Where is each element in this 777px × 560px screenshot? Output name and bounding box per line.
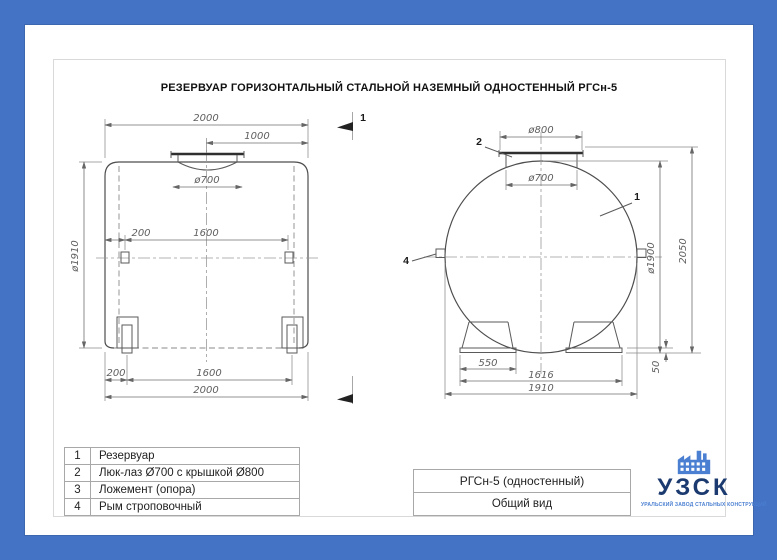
dim-eye-offset: 200 <box>131 228 150 239</box>
manhole-side <box>171 151 244 170</box>
end-view: ø800 ø700 550 1616 1910 ø1900 2050 50 2 … <box>403 125 701 399</box>
lifting-eye-end-right <box>637 249 646 258</box>
section-arrow-bottom <box>337 394 353 403</box>
factory-icon <box>675 448 713 475</box>
title-block: РГСн-5 (одностенный) Общий вид <box>413 469 631 516</box>
section-label: 1 <box>360 112 366 124</box>
section-arrow-top <box>337 122 353 131</box>
dim-base-height: 50 <box>651 361 662 374</box>
view-name: Общий вид <box>414 493 630 515</box>
table-row: 4 Рым строповочный <box>65 499 300 516</box>
part-name: Ложемент (опора) <box>91 482 300 499</box>
dim-length-top: 2000 <box>193 113 218 124</box>
part-name: Люк-лаз Ø700 с крышкой Ø800 <box>91 465 300 482</box>
logo-subtitle: УРАЛЬСКИЙ ЗАВОД СТАЛЬНЫХ КОНСТРУКЦИЙ <box>641 502 747 508</box>
dim-saddle-width: 550 <box>478 358 497 369</box>
lifting-eye-right <box>285 252 293 263</box>
part-name: Рым строповочный <box>91 499 300 516</box>
dim-half-length: 1000 <box>244 131 269 142</box>
dim-cover: ø800 <box>527 125 553 136</box>
callout-eye: 4 <box>403 255 409 267</box>
dim-saddle-span: 1616 <box>528 370 553 381</box>
dim-manhole-end: ø700 <box>527 173 553 184</box>
dim-support-offset: 200 <box>106 368 125 379</box>
section-markers: 1 <box>337 112 366 404</box>
callout-manhole: 2 <box>476 136 482 148</box>
part-number: 3 <box>65 482 91 499</box>
part-number: 2 <box>65 465 91 482</box>
company-logo: УЗСК УРАЛЬСКИЙ ЗАВОД СТАЛЬНЫХ КОНСТРУКЦИ… <box>641 448 747 508</box>
lifting-eye-left <box>121 252 129 263</box>
dim-diameter-side: ø1910 <box>70 240 81 273</box>
page-background: РЕЗЕРВУАР ГОРИЗОНТАЛЬНЫЙ СТАЛЬНОЙ НАЗЕМН… <box>0 0 777 560</box>
model-name: РГСн-5 (одностенный) <box>414 470 630 493</box>
side-extension-lines <box>79 119 308 401</box>
table-row: 1 Резервуар <box>65 448 300 465</box>
dim-diameter-end: ø1900 <box>646 242 657 275</box>
callout-tank: 1 <box>634 191 640 203</box>
dim-manhole-side: ø700 <box>193 175 219 186</box>
part-number: 4 <box>65 499 91 516</box>
lifting-eye-end-left <box>436 249 445 258</box>
logo-abbr: УЗСК <box>641 476 747 500</box>
dim-support-spacing: 1600 <box>196 368 221 379</box>
dim-length-bottom: 2000 <box>193 385 218 396</box>
dim-height: 2050 <box>678 238 689 263</box>
side-view: 2000 1000 ø700 ø1910 200 1600 200 1600 2… <box>70 113 318 401</box>
part-name: Резервуар <box>91 448 300 465</box>
dim-eye-spacing: 1600 <box>193 228 218 239</box>
dim-overall-width: 1910 <box>528 383 553 394</box>
part-number: 1 <box>65 448 91 465</box>
table-row: 2 Люк-лаз Ø700 с крышкой Ø800 <box>65 465 300 482</box>
side-dimension-lines <box>84 125 308 397</box>
table-row: 3 Ложемент (опора) <box>65 482 300 499</box>
parts-table: 1 Резервуар 2 Люк-лаз Ø700 с крышкой Ø80… <box>64 447 300 516</box>
